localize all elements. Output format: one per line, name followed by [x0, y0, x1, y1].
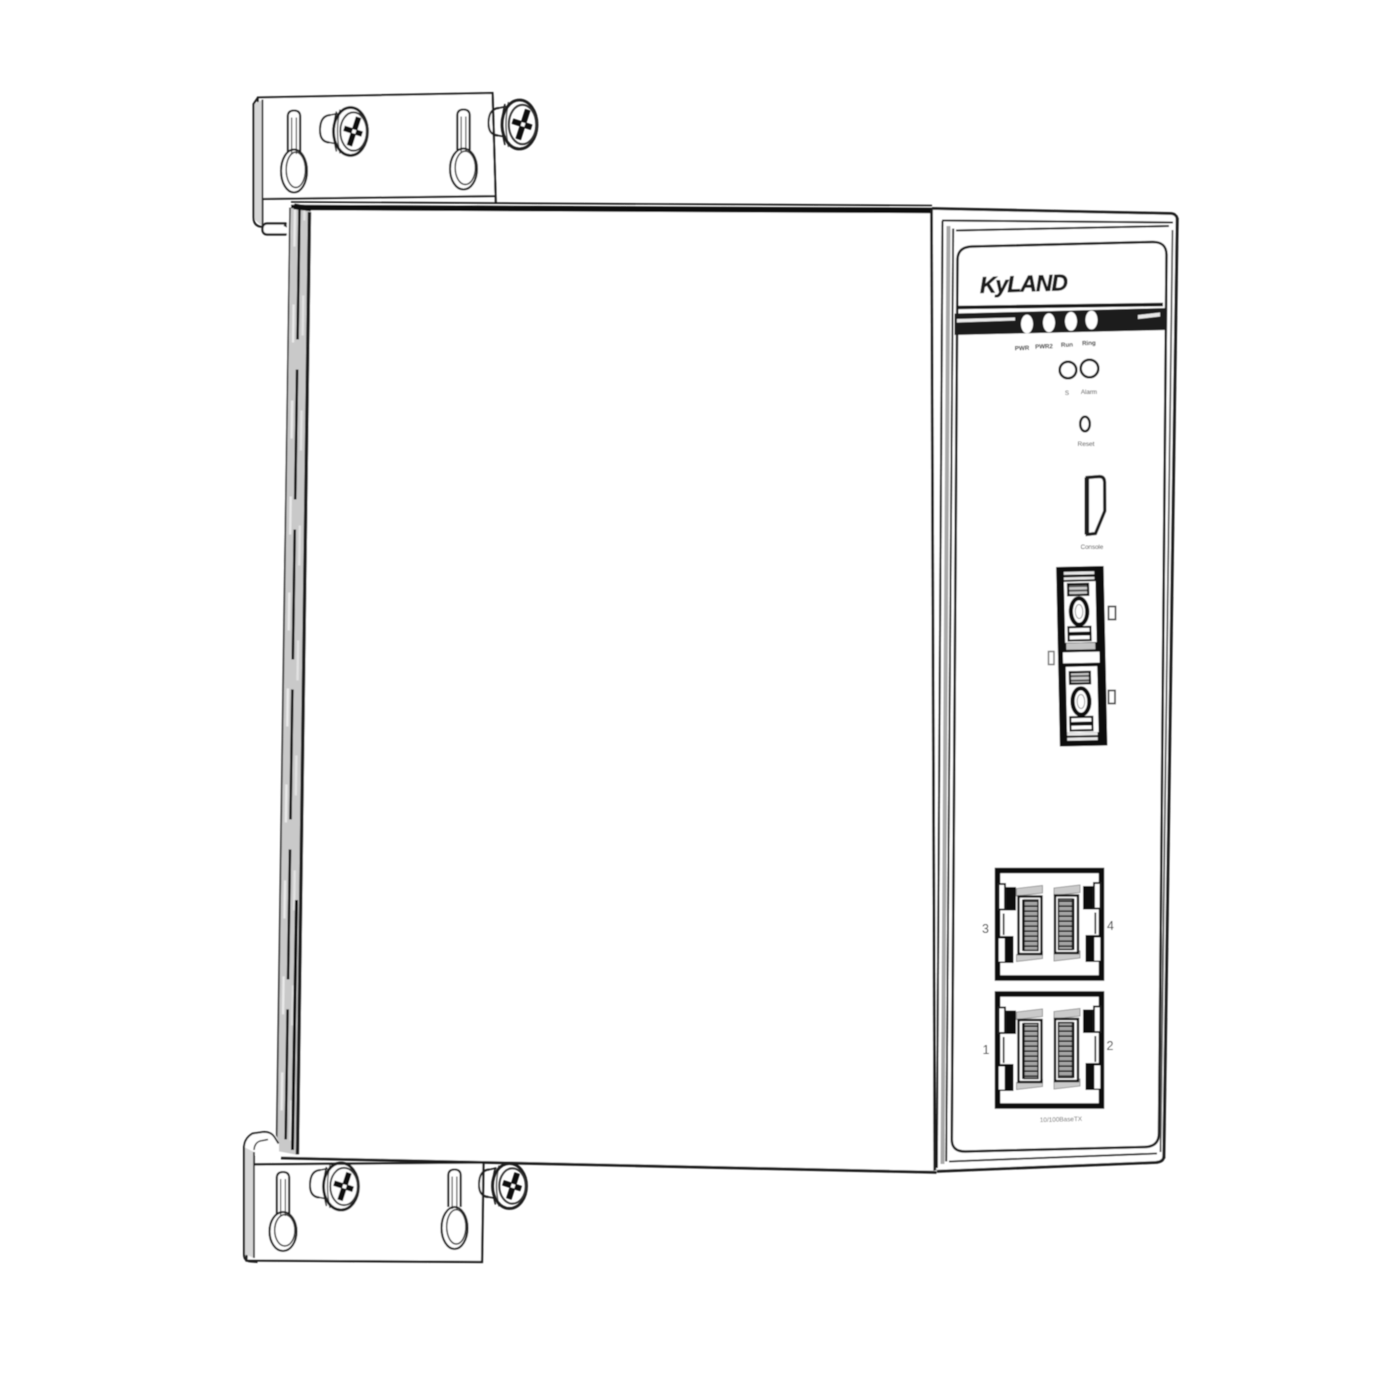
svg-text:Reset: Reset [1078, 441, 1095, 448]
svg-text:Console: Console [1081, 544, 1104, 551]
svg-text:10/100BaseTX: 10/100BaseTX [1040, 1116, 1083, 1124]
svg-text:3: 3 [982, 922, 989, 936]
svg-text:PWR: PWR [1015, 345, 1030, 352]
svg-text:PWR2: PWR2 [1035, 343, 1054, 351]
svg-text:Alarm: Alarm [1081, 389, 1097, 396]
svg-text:S: S [1065, 390, 1069, 397]
svg-text:KyLAND: KyLAND [979, 269, 1067, 298]
svg-text:Run: Run [1061, 341, 1073, 348]
svg-text:4: 4 [1107, 919, 1114, 933]
svg-text:2: 2 [1107, 1039, 1114, 1053]
svg-text:1: 1 [983, 1043, 990, 1057]
svg-text:Ring: Ring [1082, 340, 1096, 347]
